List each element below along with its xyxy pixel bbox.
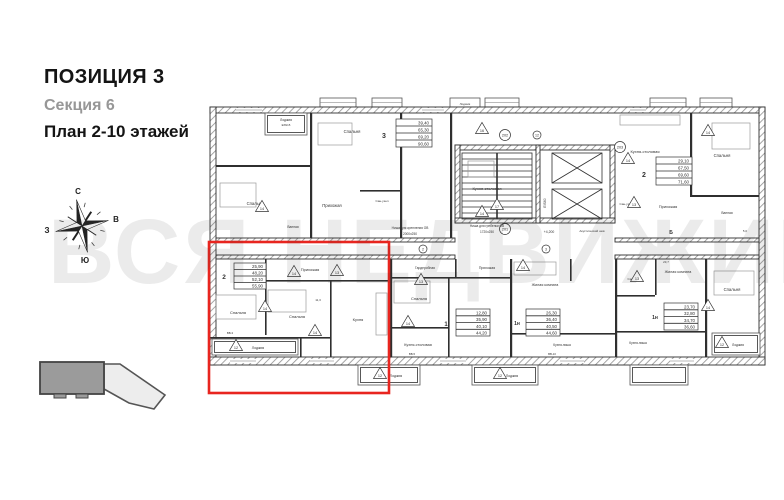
svg-text:11,3: 11,3: [315, 298, 321, 302]
svg-text:12: 12: [498, 374, 502, 378]
svg-text:Прихожая: Прихожая: [479, 266, 495, 270]
svg-text:Прихожая: Прихожая: [322, 203, 341, 208]
floor-plan: EIS60: [200, 95, 775, 395]
area-table-apt1n-right: 23,70 32,80 34,70 36,60: [664, 303, 698, 330]
svg-text:Спальня: Спальня: [230, 310, 246, 315]
svg-text:Кухня-ниша: Кухня-ниша: [629, 341, 647, 345]
svg-text:34,70: 34,70: [684, 318, 696, 323]
fire-rating-label: EIS60: [543, 198, 547, 207]
svg-text:14: 14: [406, 322, 410, 326]
svg-text:23,7: 23,7: [663, 260, 669, 264]
svg-text:12: 12: [535, 134, 539, 138]
title-block: ПОЗИЦИЯ 3 Секция 6 План 2-10 этажей: [44, 66, 189, 142]
svg-text:Ванная: Ванная: [721, 211, 733, 215]
svg-text:Гардеробная: Гардеробная: [415, 266, 435, 270]
area-table-apt2-red: 25,90 48,20 52,10 55,90: [234, 263, 266, 289]
svg-text:Жилая комната: Жилая комната: [665, 270, 693, 274]
svg-text:Сан-узел: Сан-узел: [375, 199, 388, 203]
svg-text:32,80: 32,80: [684, 311, 696, 316]
svg-text:Спальня: Спальня: [714, 153, 731, 158]
svg-text:23,70: 23,70: [684, 304, 696, 309]
svg-text:Кухня-ниша: Кухня-ниша: [553, 343, 571, 347]
svg-text:36,40: 36,40: [546, 317, 558, 322]
svg-text:Лоджия: Лоджия: [252, 346, 265, 350]
svg-text:Кухня-столовая: Кухня-столовая: [630, 149, 659, 154]
area-table-apt1n-mid: 26,30 36,40 40,50 44,60: [526, 309, 560, 336]
svg-text:44,20: 44,20: [476, 331, 488, 336]
svg-text:12,80: 12,80: [476, 310, 488, 315]
svg-text:90,60: 90,60: [418, 141, 430, 146]
svg-text:25,90: 25,90: [252, 264, 264, 269]
svg-text:Акустический шов: Акустический шов: [579, 229, 605, 233]
area-table-apt2-top: 29,10 67,50 69,60 71,60: [656, 157, 692, 185]
svg-text:Лоджия: Лоджия: [390, 374, 403, 378]
compass-south-label: Ю: [81, 256, 89, 265]
key-plan: [36, 356, 170, 418]
apt1n-right-number: 1н: [652, 315, 658, 321]
svg-text:+4,200: +4,200: [544, 230, 555, 234]
svg-text:14: 14: [521, 266, 525, 270]
apt2-top-number: 2: [642, 172, 646, 179]
svg-text:3: 3: [545, 248, 547, 252]
svg-text:29,10: 29,10: [678, 158, 690, 163]
svg-text:14: 14: [480, 212, 484, 216]
svg-text:Кухня-столовая: Кухня-столовая: [404, 343, 432, 347]
svg-text:36,60: 36,60: [684, 325, 696, 330]
svg-text:Лоджия: Лоджия: [460, 102, 471, 106]
svg-text:14: 14: [706, 306, 710, 310]
svg-text:Ниша для гребенки ОВ: Ниша для гребенки ОВ: [470, 224, 504, 228]
svg-text:52,10: 52,10: [252, 277, 264, 282]
svg-text:26,30: 26,30: [546, 310, 558, 315]
svg-text:5,0: 5,0: [743, 229, 748, 233]
compass-east-label: В: [113, 215, 119, 224]
svg-text:Жилая комната: Жилая комната: [532, 283, 560, 287]
svg-text:13: 13: [419, 280, 423, 284]
svg-text:12: 12: [234, 346, 238, 350]
svg-text:Б: Б: [669, 230, 673, 236]
svg-text:Ванная: Ванная: [287, 225, 299, 229]
section-subtitle: Секция 6: [44, 97, 189, 115]
balconies-top: [320, 98, 732, 107]
svg-text:12: 12: [378, 374, 382, 378]
svg-text:14: 14: [292, 272, 296, 276]
svg-text:2000х250: 2000х250: [403, 232, 417, 236]
svg-text:Спальня: Спальня: [411, 296, 427, 301]
page: { "title_block": { "position": "ПОЗИЦИЯ …: [0, 0, 784, 500]
svg-text:Кухня: Кухня: [353, 317, 364, 322]
area-table-apt1: 12,80 35,90 40,10 44,20: [456, 309, 490, 336]
svg-text:Лоджия: Лоджия: [732, 343, 744, 347]
apt2-red-number: 2: [222, 274, 226, 281]
svg-text:69,60: 69,60: [678, 172, 690, 177]
key-plan-current-section: [40, 362, 104, 394]
svg-text:71,60: 71,60: [678, 179, 690, 184]
svg-text:12: 12: [720, 343, 724, 347]
svg-text:40,50: 40,50: [546, 324, 558, 329]
svg-text:ВВ-3: ВВ-3: [227, 331, 234, 335]
svg-text:ВВ-5: ВВ-5: [409, 352, 416, 356]
svg-text:Спальня: Спальня: [344, 129, 361, 134]
svg-text:Спальня: Спальня: [724, 287, 741, 292]
apt1n-mid-number: 1н: [514, 321, 520, 327]
floors-subtitle: План 2-10 этажей: [44, 122, 189, 142]
svg-text:14: 14: [706, 131, 710, 135]
compass-north-label: С: [75, 187, 81, 196]
area-table-apt3: 39,40 65,30 69,20 90,60: [396, 119, 432, 147]
apt3-number: 3: [382, 133, 386, 140]
svg-text:13: 13: [632, 203, 636, 207]
svg-text:Лоджия: Лоджия: [506, 374, 519, 378]
svg-text:13: 13: [635, 277, 639, 281]
svg-text:13: 13: [335, 271, 339, 275]
svg-text:67,50: 67,50: [678, 165, 690, 170]
svg-text:ВВ-10: ВВ-10: [548, 352, 556, 356]
svg-text:69,20: 69,20: [418, 134, 430, 139]
svg-text:14: 14: [260, 207, 264, 211]
svg-text:2: 2: [422, 248, 424, 252]
svg-text:40,10: 40,10: [476, 324, 488, 329]
svg-text:Лоджия: Лоджия: [280, 118, 292, 122]
svg-text:48,20: 48,20: [252, 271, 264, 276]
svg-text:14: 14: [263, 307, 267, 311]
svg-text:17: 17: [495, 205, 499, 209]
svg-text:16: 16: [480, 129, 484, 133]
svg-text:14: 14: [626, 159, 630, 163]
compass-star: [50, 194, 114, 258]
svg-text:Кухня-столовая: Кухня-столовая: [472, 186, 501, 191]
svg-text:202: 202: [502, 134, 508, 138]
svg-text:201: 201: [502, 228, 508, 232]
svg-text:203: 203: [617, 146, 623, 150]
key-plan-other-wing: [104, 364, 165, 409]
svg-text:Ниша для крепления ОВ: Ниша для крепления ОВ: [392, 226, 429, 230]
compass-rose: С В З Ю: [42, 184, 122, 266]
compass-west-label: З: [44, 226, 49, 235]
elevator-shafts: [552, 153, 602, 219]
svg-text:35,90: 35,90: [476, 317, 488, 322]
svg-text:14: 14: [313, 331, 317, 335]
position-title: ПОЗИЦИЯ 3: [44, 66, 189, 89]
svg-text:44,60: 44,60: [546, 331, 558, 336]
svg-text:1720х250: 1720х250: [480, 230, 494, 234]
svg-text:39,40: 39,40: [418, 120, 430, 125]
svg-text:55,90: 55,90: [252, 284, 264, 289]
svg-text:Спальня: Спальня: [289, 314, 305, 319]
svg-text:Прихожая: Прихожая: [301, 267, 320, 272]
svg-text:65,30: 65,30: [418, 127, 430, 132]
svg-text:Прихожая: Прихожая: [659, 204, 678, 209]
svg-text:EIW15: EIW15: [282, 123, 291, 127]
